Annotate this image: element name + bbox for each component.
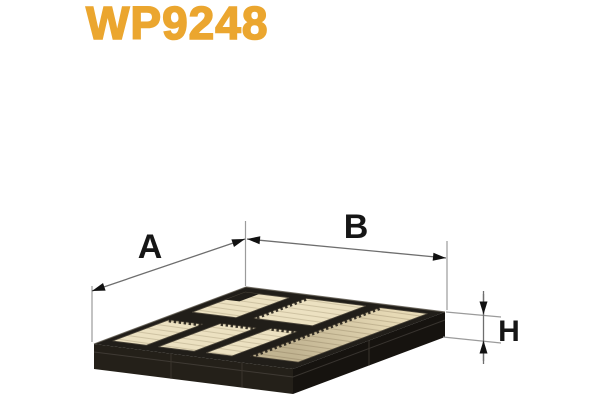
- dimension-a-label: A: [138, 228, 163, 266]
- dimension-b-label: B: [344, 208, 369, 246]
- product-image: WP9248: [0, 0, 600, 400]
- dimension-h-label: H: [498, 315, 520, 348]
- dim-h-extension-top: [446, 312, 501, 317]
- dim-h-extension-bottom: [443, 337, 501, 343]
- dimension-a-arrow: [92, 239, 245, 291]
- filter-diagram-svg: A B H: [0, 0, 600, 400]
- filter-illustration: [94, 287, 445, 394]
